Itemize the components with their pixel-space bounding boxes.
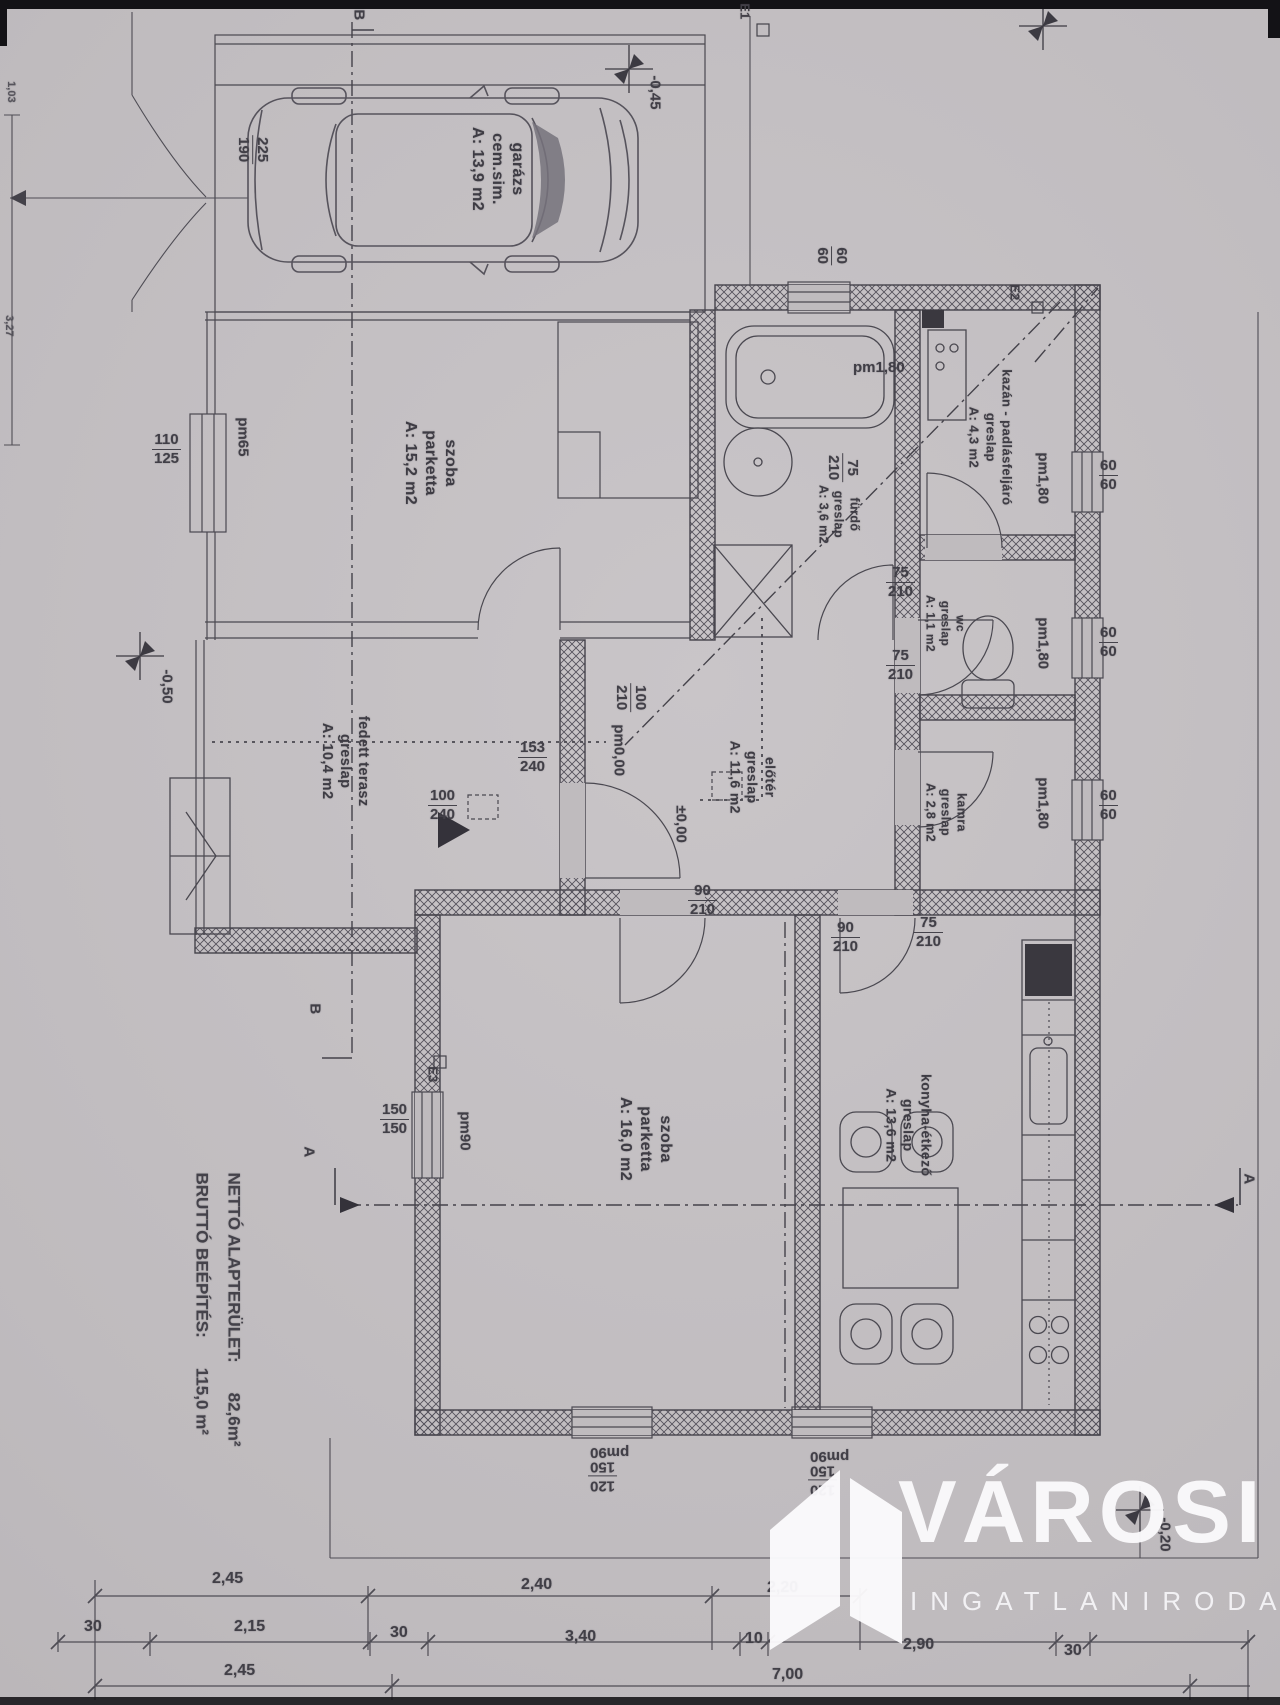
sill-szoba2-window: pm90 (456, 1111, 473, 1151)
chain-dim: 2,45 (224, 1662, 255, 1680)
car-top-view (248, 86, 638, 274)
dim-width: 90 (694, 883, 711, 899)
dim-width: 60 (1100, 625, 1117, 641)
room-floor: cem.sim. (487, 133, 507, 205)
photo-edge-left (0, 0, 7, 46)
dim-right-window-1: 6060 (1100, 458, 1117, 493)
sill-kazan-window: pm1,80 (1034, 452, 1051, 506)
dim-height: 125 (154, 451, 179, 467)
chain-dim: 2,45 (212, 1570, 243, 1588)
chain-dim: 3,40 (565, 1628, 596, 1646)
dim-height: 60 (1100, 644, 1117, 660)
photo-edge-bottom (0, 1697, 1280, 1705)
dim-furdo-window: 6060 (814, 247, 849, 264)
room-floor: greslap (937, 789, 953, 836)
dim-height: 60 (1100, 477, 1117, 493)
dim-szoba1-door: 100210 (613, 685, 648, 710)
marker-e3: E3 (425, 1066, 440, 1090)
chain-dim: 2,40 (521, 1576, 552, 1594)
dim-width: 225 (254, 137, 270, 162)
agency-brand-subtitle: INGATLANIRODA (910, 1588, 1280, 1614)
dim-height: 210 (888, 667, 913, 683)
dim-garage-door: 225190 (235, 137, 270, 162)
dim-width: 150 (382, 1102, 407, 1118)
sill-kamra-window: pm1,80 (1034, 777, 1051, 831)
dim-width: 60 (1100, 788, 1117, 804)
level-terrace: -0,50 (158, 669, 175, 713)
room-area: A: 13,6 m2 (882, 1088, 900, 1162)
room-label-terasz: fedett terasz greslap A: 10,4 m2 (318, 696, 372, 826)
room-label-kazan: kazán - padlásfeljáró greslap A: 4,3 m2 (966, 352, 1015, 522)
room-area: A: 4,3 m2 (966, 407, 982, 468)
marker-section-a-right: A (1240, 1173, 1257, 1189)
summary-net-label: NETTÓ ALAPTERÜLET: (226, 1173, 243, 1363)
dim-right-window-2: 6060 (1100, 625, 1117, 660)
room-floor: greslap (743, 751, 761, 804)
marker-e2: E2 (1007, 284, 1022, 308)
dim-width: 60 (833, 247, 849, 264)
agency-brand-name: VÁROSI (898, 1468, 1265, 1556)
room-name: kamra (953, 793, 969, 832)
dim-height: 240 (520, 759, 545, 775)
dim-width: 110 (154, 432, 178, 448)
room-area: A: 10,4 m2 (318, 723, 336, 800)
room-name: fürdő (846, 497, 862, 531)
photo-edge-right (1268, 0, 1280, 38)
dim-konyha-door-b: 75210 (916, 915, 941, 950)
dim-height: 210 (888, 584, 913, 600)
room-label-konyha: konyha-étkező greslap A: 13,6 m2 (882, 1055, 935, 1195)
sill-szoba1-window: pm65 (234, 417, 251, 457)
room-name: szoba (440, 439, 460, 486)
dim-width: 120 (590, 1477, 615, 1493)
marker-e1: E1 (737, 3, 752, 27)
room-name: szoba (655, 1115, 675, 1162)
dim-width: 75 (844, 459, 860, 476)
dim-height: 210 (613, 685, 629, 710)
marker-section-a-left: A (300, 1146, 317, 1162)
room-label-szoba2: szoba parketta A: 16,0 m2 (615, 1074, 675, 1204)
dim-front-door: 90210 (690, 883, 715, 918)
floor-plan-drawing (0, 0, 1280, 1705)
room-floor: greslap (336, 734, 354, 788)
dim-width: 100 (430, 788, 455, 804)
dim-height: 210 (825, 455, 841, 480)
dim-height: 240 (430, 807, 455, 823)
chain-dim: 2,15 (234, 1618, 265, 1636)
dim-furdo-door: 75210 (825, 455, 860, 480)
room-name: fedett terasz (354, 716, 372, 807)
room-label-szoba1: szoba parketta A: 15,2 m2 (400, 398, 460, 528)
room-area: A: 2,8 m2 (922, 783, 938, 842)
dim-width: 153 (520, 740, 545, 756)
dim-height: 60 (1100, 807, 1117, 823)
terrace-steps (170, 778, 230, 934)
room-area: A: 11,6 m2 (726, 741, 744, 814)
agency-logo-icon (760, 1438, 910, 1673)
room-floor: greslap (982, 413, 998, 462)
summary-gross-value: 115,0 m² (194, 1368, 211, 1435)
room-floor: greslap (938, 601, 953, 647)
room-floor: parketta (420, 430, 440, 495)
room-label-wc: wc greslap A: 1,1 m2 (923, 574, 968, 674)
dim-wc-door: 75210 (888, 648, 913, 683)
section-a-arrow-left (340, 1197, 360, 1213)
dim-terasz-pass: 153240 (520, 740, 545, 775)
section-a-arrow-right (1214, 1197, 1234, 1213)
dim-szoba2-window: 150150 (382, 1102, 407, 1137)
sill-wc-window: pm1,80 (1034, 617, 1051, 671)
survey-crosses (116, 2, 1164, 1534)
dim-height: 60 (814, 247, 830, 264)
room-area: A: 16,0 m2 (615, 1097, 635, 1181)
kitchen-furniture (840, 940, 1075, 1410)
dim-terasz-opening: 100240 (430, 788, 455, 823)
room-area: A: 1,1 m2 (923, 595, 938, 652)
level-garage-front: -0,45 (646, 75, 663, 119)
photo-edge-top (0, 0, 1280, 9)
summary-gross-label: BRUTTÓ BEÉPÍTÉS: (194, 1173, 211, 1338)
sill-furdo-window: pm1,80 (853, 360, 905, 377)
room-floor: greslap (899, 1099, 917, 1152)
room-label-kamra: kamra greslap A: 2,8 m2 (922, 762, 969, 862)
room-name: garázs (507, 142, 527, 195)
dim-szoba1-window: 110125 (154, 432, 179, 467)
dim-height: 190 (235, 137, 251, 162)
dim-right-window-3: 6060 (1100, 788, 1117, 823)
plot-dim-upper: 1,03 (5, 81, 17, 115)
dim-kazan-door: 75210 (888, 565, 913, 600)
dim-width: 75 (920, 915, 937, 931)
dim-height: 150 (382, 1121, 407, 1137)
room-name: kazán - padlásfeljáró (998, 369, 1014, 505)
dim-width: 100 (632, 685, 648, 710)
chain-dim: 30 (84, 1618, 102, 1636)
sill-bottom-window-1: pm90 (590, 1443, 629, 1460)
room-area: A: 3,6 m2 (815, 485, 831, 544)
chain-dim: 30 (390, 1624, 408, 1642)
level-entry: ±0,00 (672, 805, 689, 853)
floor-plan-page: garázs cem.sim. A: 13,9 m2 szoba parkett… (0, 0, 1280, 1705)
summary-net: NETTÓ ALAPTERÜLET: 82,6m² (226, 1173, 243, 1473)
marker-section-b-bottom: B (306, 1003, 323, 1019)
summary-gross: BRUTTÓ BEÉPÍTÉS: 115,0 m² (194, 1173, 211, 1473)
dim-width: 75 (892, 648, 909, 664)
dim-width: 60 (1100, 458, 1117, 474)
dim-width: 75 (892, 565, 909, 581)
dim-bottom-window-1: 120150 (590, 1458, 615, 1493)
room-label-garage: garázs cem.sim. A: 13,9 m2 (467, 104, 527, 234)
room-floor: greslap (830, 491, 846, 538)
room-name: előtér (761, 757, 779, 798)
room-area: A: 13,9 m2 (467, 127, 487, 211)
summary-net-value: 82,6m² (226, 1393, 243, 1447)
dim-konyha-door-a: 90210 (833, 920, 858, 955)
plot-dim-lower: 3,27 (3, 315, 15, 349)
room-area: A: 15,2 m2 (400, 421, 420, 505)
marker-section-b-top: B (350, 9, 367, 25)
dim-width: 90 (837, 920, 854, 936)
dim-height: 210 (833, 939, 858, 955)
sill-entry: pm0,00 (610, 724, 627, 778)
room-name: wc (953, 615, 968, 632)
dim-height: 210 (916, 934, 941, 950)
dim-height: 210 (690, 902, 715, 918)
chain-dim: 30 (1064, 1642, 1082, 1660)
room-label-eloter: előtér greslap A: 11,6 m2 (726, 717, 779, 837)
room-name: konyha-étkező (917, 1074, 935, 1176)
room-floor: parketta (635, 1106, 655, 1171)
